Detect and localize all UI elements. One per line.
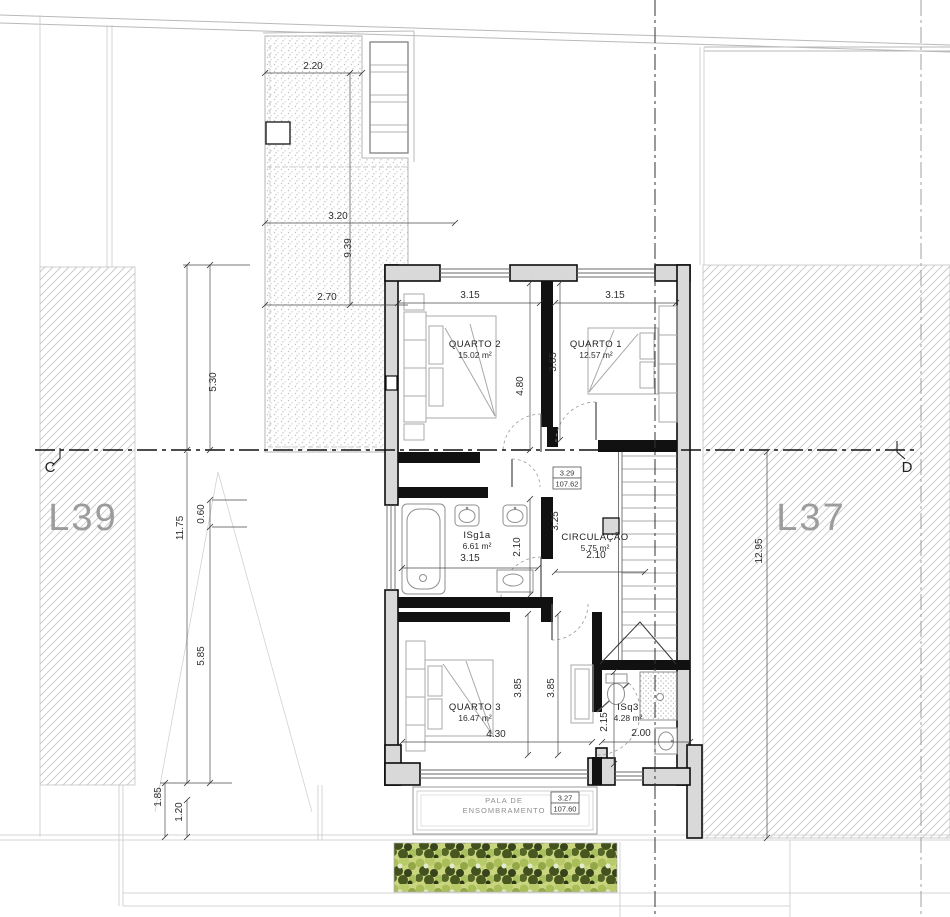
dimension-label: 3.65 xyxy=(548,352,559,372)
dimension-label: 5.85 xyxy=(196,646,207,666)
dimension-label: 9.39 xyxy=(343,238,354,258)
door-isg1a-north xyxy=(512,459,540,487)
window-quarto1 xyxy=(577,269,655,277)
stair xyxy=(600,452,677,664)
room-name: QUARTO 1 xyxy=(570,339,622,350)
shower xyxy=(640,672,677,720)
room-name: QUARTO 2 xyxy=(449,339,501,350)
dimension-label: 2.15 xyxy=(599,712,610,732)
level-marker-upper: 3.29 107.62 xyxy=(553,467,581,489)
stair-break-mark xyxy=(600,622,676,664)
room-name: ISq3 xyxy=(617,702,639,713)
dimension-label: 2.20 xyxy=(303,61,323,72)
quarto1-furniture xyxy=(588,306,677,422)
garden-planter xyxy=(266,122,290,144)
level-value: 3.29 xyxy=(560,469,575,478)
dimension-label: 12.95 xyxy=(754,538,765,563)
level-marker-lower: 3.27 107.60 xyxy=(551,792,579,814)
level-elevation: 107.60 xyxy=(554,805,577,814)
window-isq3 xyxy=(615,772,643,780)
bathtub xyxy=(402,504,445,594)
dimension-label: 3.85 xyxy=(513,678,524,698)
window-quarto2 xyxy=(440,269,510,277)
dimension-label: 1.20 xyxy=(174,802,185,822)
door-quarto2 xyxy=(503,414,541,452)
door-quarto3 xyxy=(552,604,588,640)
dimension-label: 5.30 xyxy=(208,372,219,392)
dimension-label: 2.70 xyxy=(317,292,337,303)
dimension-label: 0.60 xyxy=(196,504,207,524)
exterior-stair xyxy=(370,42,408,153)
lot-label-l39: L39 xyxy=(48,497,117,539)
level-elevation: 107.62 xyxy=(556,480,579,489)
dimension-label: 3.20 xyxy=(328,211,348,222)
lot-label-l37: L37 xyxy=(776,497,845,539)
floor-plan-page: C D PALA DE ENSOMBRAMENTO 3.29 107.62 3.… xyxy=(0,0,950,917)
room-area: 12.57 m² xyxy=(579,350,613,360)
dimension-label: 2.00 xyxy=(631,728,651,739)
section-marker-d: D xyxy=(902,459,913,476)
isq3-washbasin xyxy=(655,728,677,754)
wall-niche xyxy=(386,376,397,390)
lot-l37-hatch xyxy=(703,265,950,838)
room-area: 16.47 m² xyxy=(458,713,492,723)
dimension-label: 4.30 xyxy=(486,729,506,740)
room-area: 5.75 m² xyxy=(581,543,610,553)
vanity-cabinet xyxy=(497,570,533,592)
floor-plan-drawing: C D PALA DE ENSOMBRAMENTO 3.29 107.62 3.… xyxy=(0,0,950,917)
room-area: 6.61 m² xyxy=(463,541,492,551)
dimension-label: 1.85 xyxy=(153,787,164,807)
dimension-label: 3.25 xyxy=(550,511,561,531)
stair-treads xyxy=(622,456,677,651)
neighbour-lots xyxy=(40,265,950,838)
window-quarto3 xyxy=(420,770,588,778)
window-isg1a xyxy=(387,505,395,590)
level-value: 3.27 xyxy=(558,794,573,803)
toilet xyxy=(606,674,627,705)
quarto2-furniture xyxy=(404,294,496,440)
section-marker-c: C xyxy=(45,459,56,476)
room-name: CIRCULAÇÃO xyxy=(561,532,628,543)
dimension-label: 3.15 xyxy=(605,290,625,301)
pala-label-line2: ENSOMBRAMENTO xyxy=(463,806,546,815)
washbasin-2 xyxy=(503,505,527,526)
dimension-label: 3.15 xyxy=(460,553,480,564)
dimension-label: 11.75 xyxy=(175,515,186,540)
dimension-label: 4.80 xyxy=(515,376,526,396)
room-name: QUARTO 3 xyxy=(449,702,501,713)
room-name: ISg1a xyxy=(463,530,491,541)
room-area: 15.02 m² xyxy=(458,350,492,360)
hedge xyxy=(394,843,617,892)
dimension-label: 3.85 xyxy=(546,678,557,698)
right-wall-extension xyxy=(687,745,702,838)
room-area: 4.28 m² xyxy=(614,713,643,723)
pala-label-line1: PALA DE xyxy=(485,796,523,805)
door-quarto1 xyxy=(556,402,596,442)
dimension-label: 2.10 xyxy=(512,537,523,557)
dimension-label: 3.15 xyxy=(460,290,480,301)
washbasin-1 xyxy=(455,505,479,526)
